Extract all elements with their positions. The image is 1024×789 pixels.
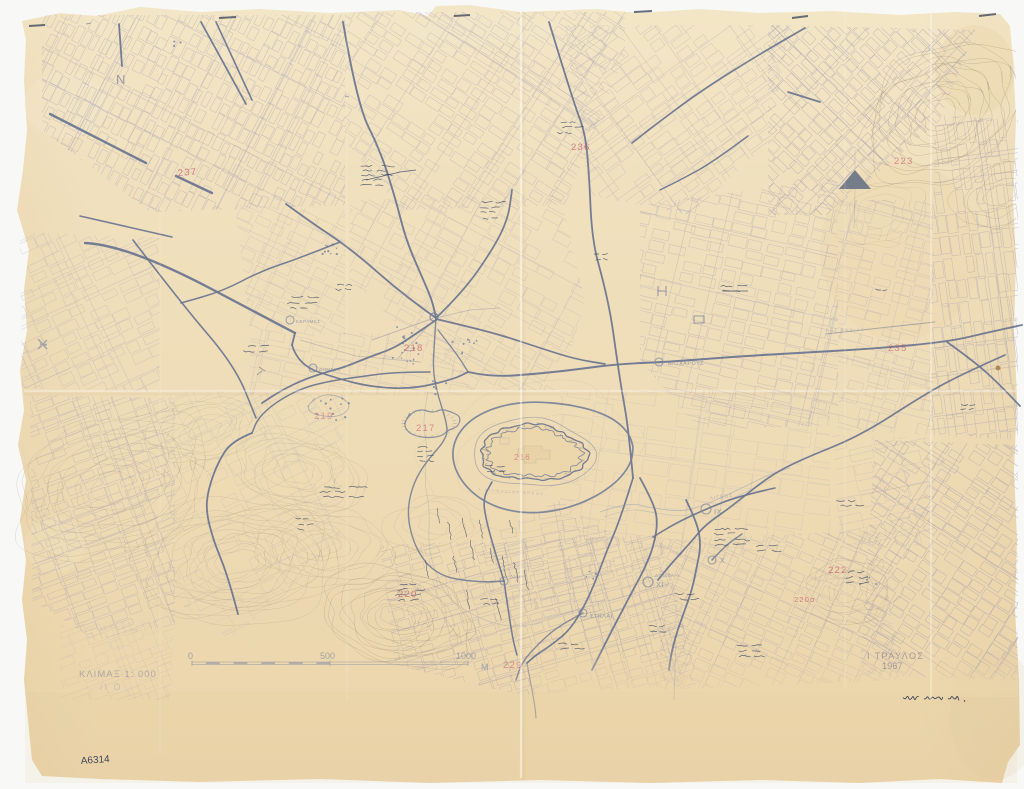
svg-text:220: 220 — [398, 589, 417, 600]
svg-text:219: 219 — [314, 411, 333, 422]
svg-text:X: X — [720, 558, 725, 565]
svg-text:220α: 220α — [794, 595, 816, 604]
svg-text:500: 500 — [320, 651, 335, 661]
svg-text:229: 229 — [503, 660, 522, 671]
svg-text:ΣΤΗΛΑΙ: ΣΤΗΛΑΙ — [590, 614, 613, 620]
svg-text:ΔΗΜΣΙΑΙ: ΔΗΜΣΙΑΙ — [319, 367, 341, 372]
svg-text:223: 223 — [894, 156, 913, 167]
svg-text:ΚΛΙΜΑΞ 1: 000: ΚΛΙΜΑΞ 1: 000 — [79, 669, 157, 680]
svg-text:236: 236 — [571, 142, 590, 153]
svg-text:N: N — [116, 72, 125, 87]
svg-text:M: M — [481, 662, 489, 672]
svg-text:Ι ΤΡΑΥΛΟΣ: Ι ΤΡΑΥΛΟΣ — [867, 651, 924, 661]
svg-text:IX: IX — [714, 507, 722, 516]
svg-text:1967: 1967 — [882, 661, 903, 671]
svg-text:235: 235 — [888, 343, 907, 354]
svg-text:216: 216 — [514, 453, 531, 462]
svg-text:ΔΙΓΜΕΛΑΙ: ΔΙΓΜΕΛΑΙ — [655, 573, 680, 578]
svg-text:1000: 1000 — [456, 651, 476, 661]
svg-text:217: 217 — [416, 423, 435, 434]
svg-text:237: 237 — [177, 167, 197, 179]
svg-text:ΔΙΟΧΑΡΟΥΣ: ΔΙΟΧΑΡΟΥΣ — [668, 361, 704, 367]
svg-text:ΚΕΡΑΜΚΣ: ΚΕΡΑΜΚΣ — [296, 319, 321, 324]
svg-text:/Ι Ο: /Ι Ο — [100, 682, 123, 692]
svg-text:A6314: A6314 — [80, 754, 110, 767]
svg-text:XI: XI — [656, 580, 664, 589]
svg-text:0: 0 — [188, 651, 193, 661]
svg-text:218: 218 — [404, 343, 423, 354]
